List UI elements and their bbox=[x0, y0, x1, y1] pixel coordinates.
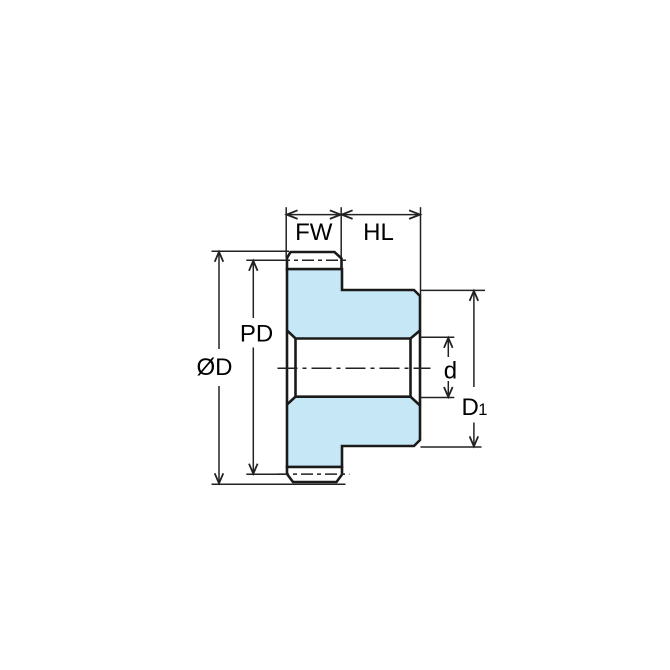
svg-text:1: 1 bbox=[478, 401, 487, 419]
svg-text:D: D bbox=[462, 394, 479, 421]
svg-text:ØD: ØD bbox=[197, 354, 233, 381]
svg-text:PD: PD bbox=[240, 321, 273, 348]
svg-text:d: d bbox=[444, 358, 457, 385]
svg-text:FW: FW bbox=[295, 219, 333, 246]
svg-text:HL: HL bbox=[363, 219, 394, 246]
